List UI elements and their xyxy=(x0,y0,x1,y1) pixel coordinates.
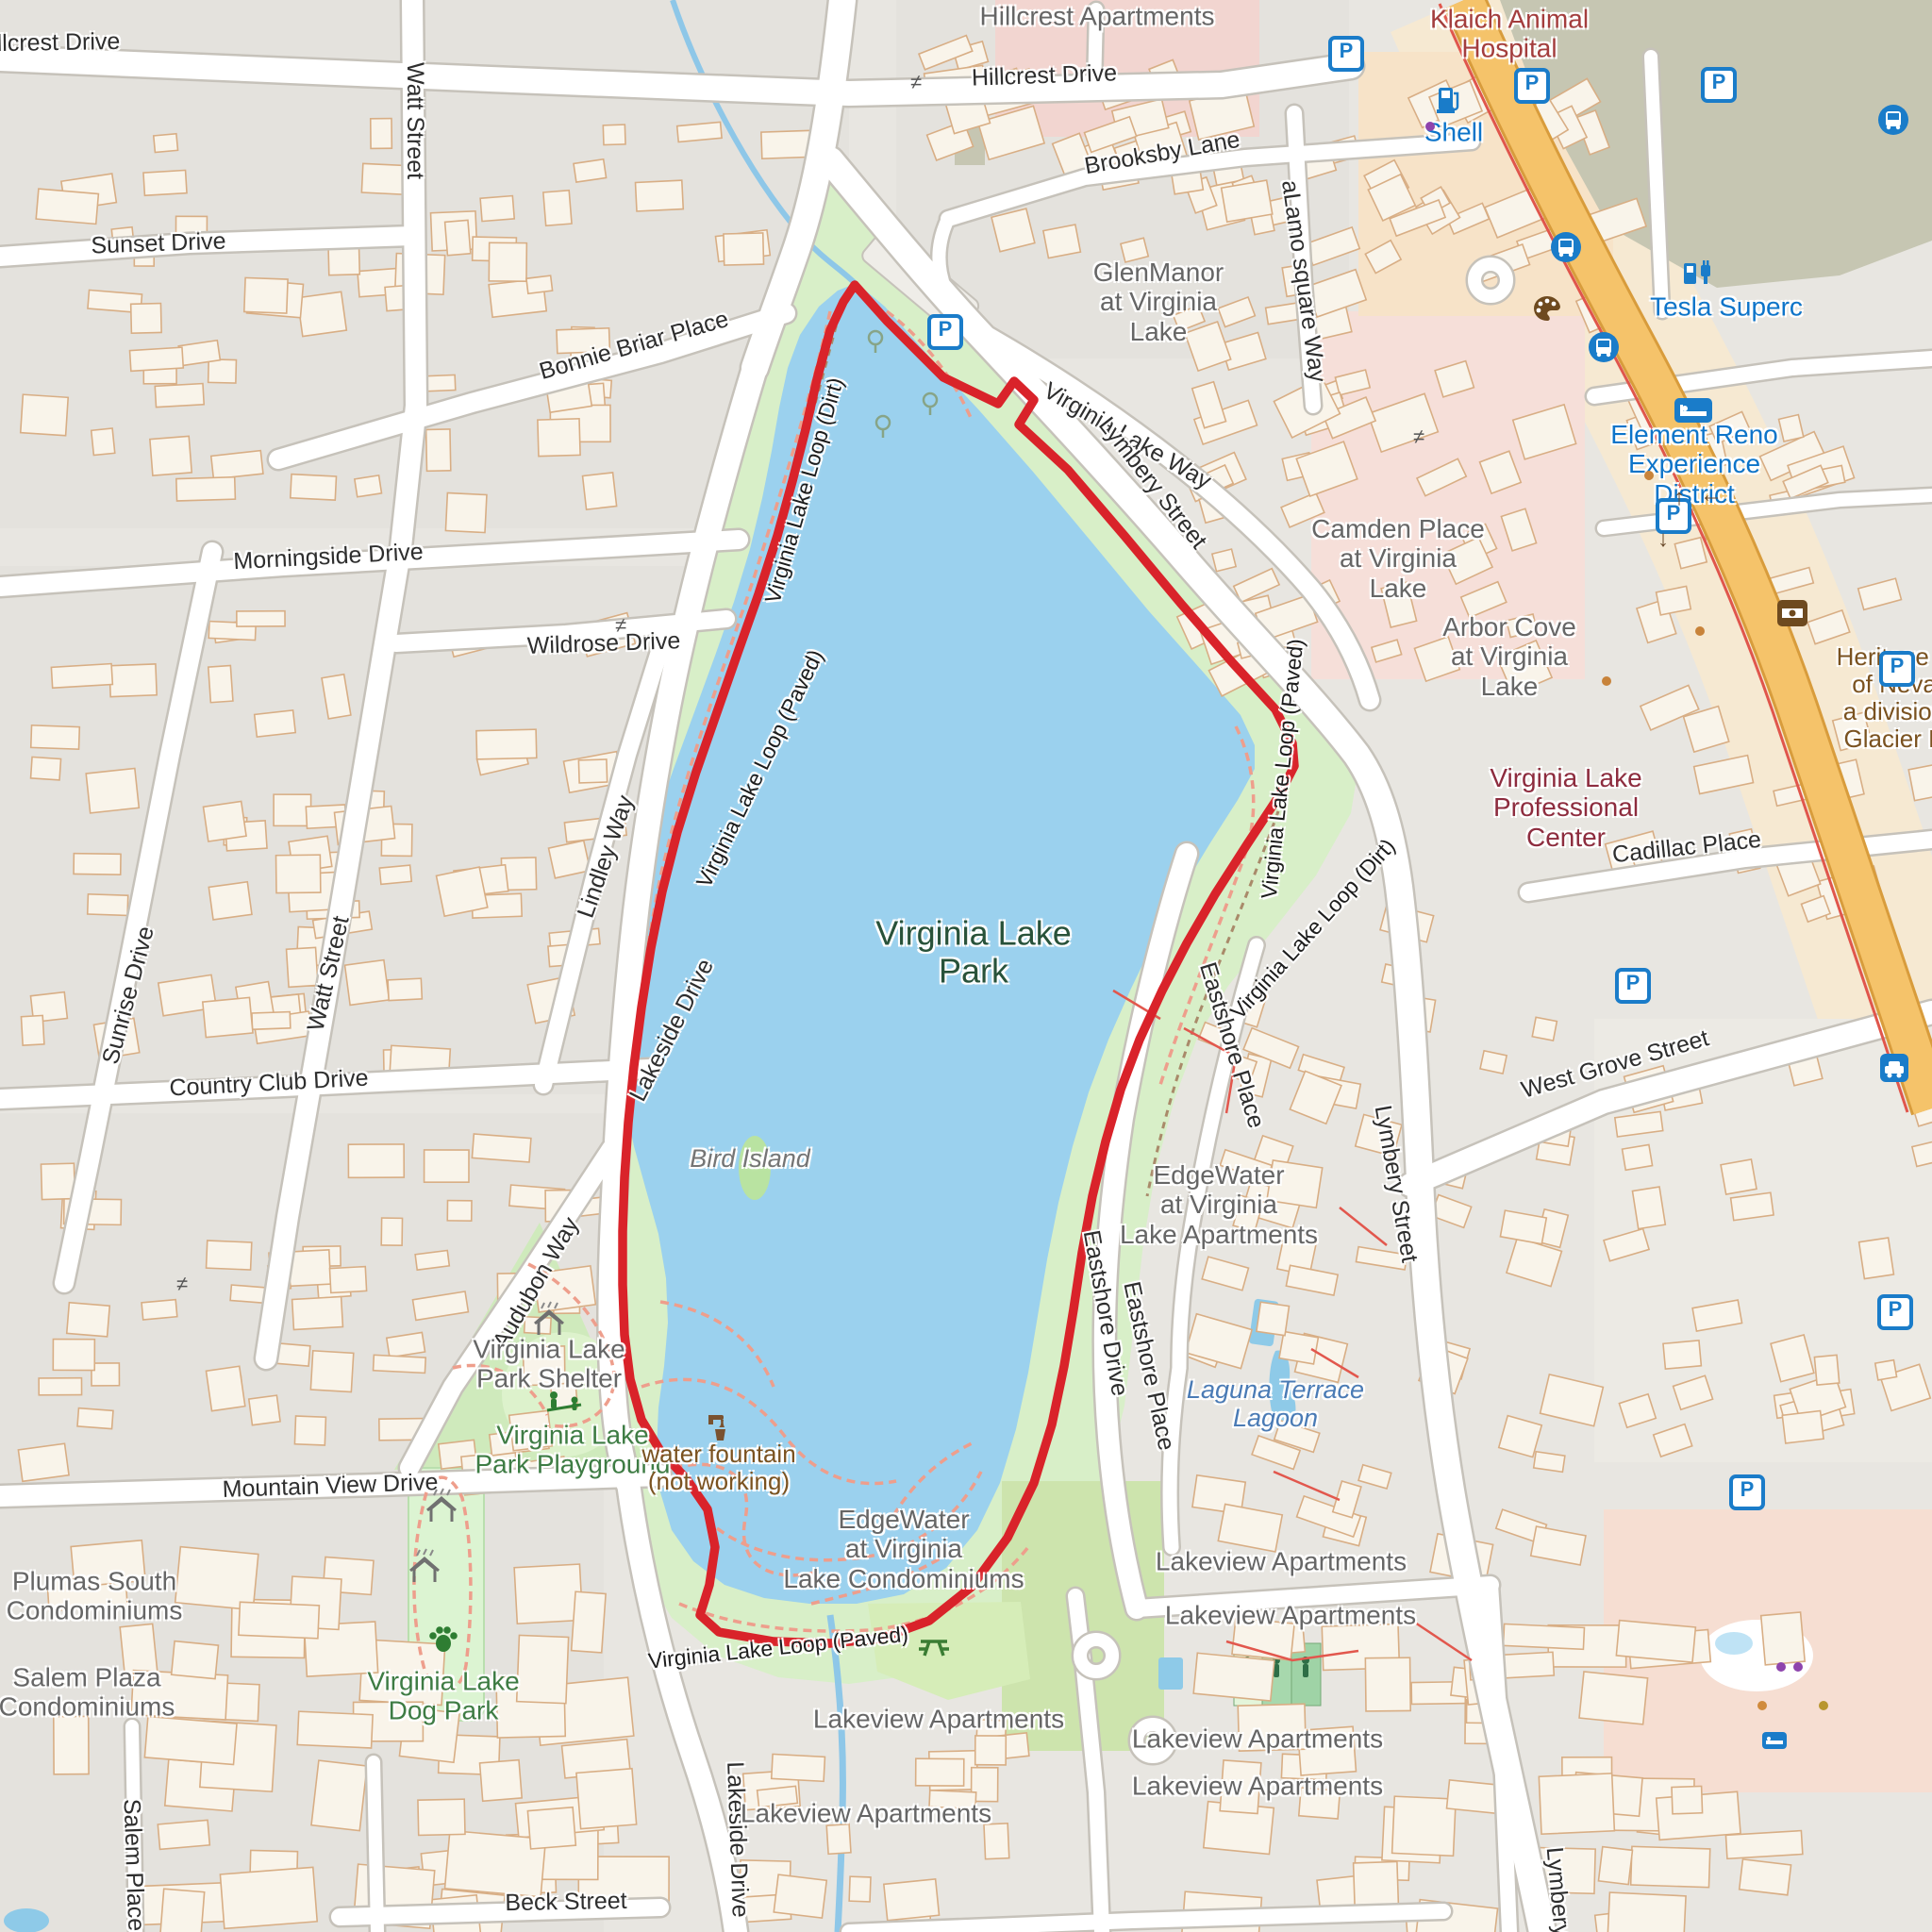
poi-label-line: District xyxy=(1610,479,1777,508)
bus-icon xyxy=(1877,104,1909,136)
place-label: Arbor Coveat VirginiaLake xyxy=(1442,612,1576,701)
poi-label-line: water fountain xyxy=(641,1441,795,1468)
place-label-line: EdgeWater xyxy=(1120,1160,1318,1190)
place-label-line: Lake Apartments xyxy=(1120,1220,1318,1249)
water-label: Bird Island xyxy=(690,1144,810,1173)
place-label-line: at Virginia xyxy=(1093,287,1224,316)
parking-icon: P xyxy=(1701,67,1737,103)
map-canvas[interactable]: llcrest DriveHillcrest DriveSunset Drive… xyxy=(0,0,1932,1932)
street-label-line: Salem Place xyxy=(119,1798,150,1931)
poi-dot xyxy=(1793,1662,1803,1672)
place-label-line: at Virginia xyxy=(1311,543,1485,573)
park-label-line: Dog Park xyxy=(367,1696,519,1725)
poi-label: Element RenoExperienceDistrict xyxy=(1610,420,1777,508)
playground-icon xyxy=(545,1388,583,1416)
place-label: Salem PlazaCondominiums xyxy=(0,1663,175,1723)
place-label: Lakeview Apartments xyxy=(741,1798,991,1827)
street-label: Beck Street xyxy=(505,1888,627,1916)
street-label: Salem Place xyxy=(119,1798,150,1931)
place-label: Lakeview Apartments xyxy=(1132,1771,1383,1800)
poi-label: Virginia LakeProfessionalCenter xyxy=(1490,763,1641,852)
parking-icon: P xyxy=(1514,68,1550,104)
place-label-line: Plumas South xyxy=(7,1567,183,1596)
place-label-line: Arbor Cove xyxy=(1442,612,1576,641)
parking-icon: P xyxy=(1615,968,1651,1004)
place-label: Camden Placeat VirginiaLake xyxy=(1311,514,1485,603)
poi-dot xyxy=(1425,122,1435,131)
poi-label-line: Tesla Superc xyxy=(1650,291,1803,321)
hotel-icon xyxy=(1674,398,1712,423)
paw-icon xyxy=(427,1624,459,1654)
place-label-line: Lake xyxy=(1093,317,1224,346)
place-label: Lakeview Apartments xyxy=(1132,1724,1383,1753)
poi-label-line: (not working) xyxy=(641,1468,795,1495)
street-label-line: Sunset Drive xyxy=(91,228,226,259)
poi-label-line: a division xyxy=(1837,698,1932,725)
shelter-icon xyxy=(532,1301,566,1337)
place-label: Plumas SouthCondominiums xyxy=(7,1567,183,1626)
poi-label: Tesla Superc xyxy=(1650,291,1803,321)
palette-icon xyxy=(1531,294,1563,323)
place-label-line: Lake Condominiums xyxy=(783,1564,1024,1593)
street-label-line: Lakeside Drive xyxy=(722,1761,754,1918)
place-label-line: at Virginia xyxy=(1120,1190,1318,1219)
arrow-down-icon: ↓ xyxy=(1657,528,1669,551)
place-label: Hillcrest Apartments xyxy=(980,1,1215,30)
parking-icon: P xyxy=(1328,36,1364,72)
place-label: Virginia LakePark Shelter xyxy=(473,1335,625,1394)
place-label-line: Virginia Lake xyxy=(473,1335,625,1364)
place-label-line: Lakeview Apartments xyxy=(1156,1546,1407,1575)
picnic-icon xyxy=(917,1634,951,1658)
place-label-line: EdgeWater xyxy=(783,1505,1024,1534)
poi-label-line: Shell xyxy=(1424,117,1483,146)
street-label: llcrest Drive xyxy=(0,28,121,57)
place-label-line: Lakeview Apartments xyxy=(1132,1724,1383,1753)
place-label-line: Lakeview Apartments xyxy=(1132,1771,1383,1800)
poi-label-line: Klaich Animal xyxy=(1430,5,1589,34)
park-label-line: Virginia Lake xyxy=(367,1667,519,1696)
park-label: Virginia LakePark xyxy=(875,915,1071,991)
park-label-line: Park xyxy=(875,953,1071,991)
water-label: Laguna TerraceLagoon xyxy=(1187,1375,1364,1432)
poi-label-line: Professional xyxy=(1490,792,1641,822)
gate-icon: ≠ xyxy=(176,1274,188,1294)
shelter-icon xyxy=(408,1548,441,1584)
tree-icon xyxy=(865,329,886,354)
place-label-line: Camden Place xyxy=(1311,514,1485,543)
street-label-line: llcrest Drive xyxy=(0,28,121,57)
fuel-icon xyxy=(1435,84,1463,116)
poi-dot xyxy=(1602,676,1611,686)
place-label-line: Lakeview Apartments xyxy=(1165,1600,1416,1629)
parking-icon: P xyxy=(1729,1474,1765,1510)
poi-label: water fountain(not working) xyxy=(641,1441,795,1495)
place-label: Lakeview Apartments xyxy=(1156,1546,1407,1575)
street-label: Sunset Drive xyxy=(91,228,226,259)
bank-icon xyxy=(1777,600,1807,626)
poi-label-line: Experience xyxy=(1610,449,1777,478)
ev-charger-icon xyxy=(1682,259,1714,288)
gate-icon: ≠ xyxy=(615,615,626,636)
poi-dot xyxy=(1644,471,1654,480)
place-label-line: Condominiums xyxy=(0,1692,175,1722)
street-label-line: Watt Street xyxy=(402,62,428,179)
bus-icon xyxy=(1588,331,1620,363)
street-label: Wildrose Drive xyxy=(526,627,680,659)
place-label: EdgeWaterat VirginiaLake Condominiums xyxy=(783,1505,1024,1593)
street-label: Watt Street xyxy=(402,62,428,179)
gate-icon: ≠ xyxy=(910,72,922,92)
hotel-small-icon xyxy=(1762,1732,1787,1749)
water-label-line: Laguna Terrace xyxy=(1187,1375,1364,1404)
parking-icon: P xyxy=(1877,1294,1913,1330)
poi-label-line: Center xyxy=(1490,823,1641,852)
place-label: Lakeview Apartments xyxy=(1165,1600,1416,1629)
fountain-icon xyxy=(705,1411,733,1441)
park-label-line: Virginia Lake xyxy=(875,915,1071,953)
shelter-icon xyxy=(425,1488,458,1524)
poi-label-line: Glacier B xyxy=(1837,725,1932,753)
place-label-line: Lakeview Apartments xyxy=(741,1798,991,1827)
taxi-icon xyxy=(1880,1054,1908,1082)
poi-dot xyxy=(1695,626,1705,636)
poi-label-line: Hospital xyxy=(1430,34,1589,63)
arrow-up-icon: ↑ xyxy=(1674,487,1685,509)
poi-label: Klaich AnimalHospital xyxy=(1430,5,1589,64)
street-label-line: Wildrose Drive xyxy=(526,627,680,659)
tree-icon xyxy=(920,391,941,416)
place-label-line: Lake xyxy=(1311,574,1485,603)
parking-icon: P xyxy=(1879,651,1915,687)
poi-label-line: Virginia Lake xyxy=(1490,763,1641,792)
place-label: GlenManorat VirginiaLake xyxy=(1093,258,1224,346)
street-label-line: Hillcrest Drive xyxy=(971,59,1117,91)
place-label-line: at Virginia xyxy=(783,1534,1024,1563)
poi-dot xyxy=(1819,1701,1828,1710)
place-label-line: Hillcrest Apartments xyxy=(980,1,1215,30)
gate-icon: ≠ xyxy=(1413,426,1424,447)
water-label-line: Bird Island xyxy=(690,1144,810,1173)
street-label-line: Beck Street xyxy=(505,1888,627,1916)
park-label: Virginia LakeDog Park xyxy=(367,1667,519,1726)
parking-icon: P xyxy=(927,314,963,350)
place-label: Lakeview Apartments xyxy=(813,1704,1064,1733)
place-label-line: Salem Plaza xyxy=(0,1663,175,1692)
poi-dot xyxy=(1757,1701,1767,1710)
street-label: Lakeside Drive xyxy=(722,1761,754,1918)
poi-label: Shell xyxy=(1424,117,1483,146)
arrow-left-icon: ← xyxy=(1700,484,1723,507)
place-label-line: GlenManor xyxy=(1093,258,1224,287)
place-label-line: at Virginia xyxy=(1442,641,1576,671)
place-label-line: Lakeview Apartments xyxy=(813,1704,1064,1733)
bus-icon xyxy=(1550,231,1582,263)
place-label-line: Condominiums xyxy=(7,1596,183,1625)
street-label: Hillcrest Drive xyxy=(971,59,1117,91)
place-label-line: Lake xyxy=(1442,672,1576,701)
poi-label-line: Element Reno xyxy=(1610,420,1777,449)
poi-dot xyxy=(1776,1662,1786,1672)
water-label-line: Lagoon xyxy=(1187,1404,1364,1432)
tree-icon xyxy=(873,414,893,439)
place-label: EdgeWaterat VirginiaLake Apartments xyxy=(1120,1160,1318,1249)
